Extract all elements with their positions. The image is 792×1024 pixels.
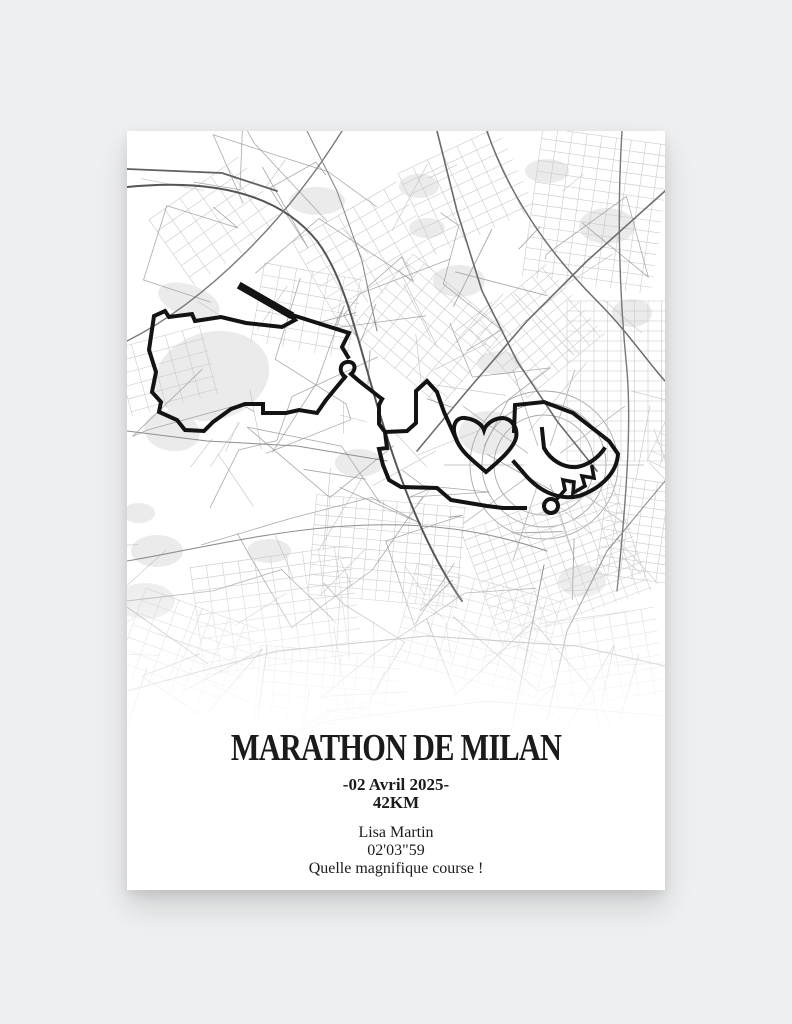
route-finish-circle xyxy=(544,499,558,513)
page-background: { "page": { "background_color": "#eff0f1… xyxy=(0,0,792,1024)
marathon-route-path xyxy=(379,381,457,441)
finish-time: 02'03"59 xyxy=(127,843,665,859)
runner-name: Lisa Martin xyxy=(127,825,665,841)
personal-caption: Quelle magnifique course ! xyxy=(127,861,665,877)
marathon-route-path xyxy=(341,362,382,399)
event-date: -02 Avril 2025- xyxy=(127,776,665,793)
marathon-map-poster: MARATHON DE MILAN -02 Avril 2025- 42KM L… xyxy=(127,131,665,890)
race-distance: 42KM xyxy=(127,794,665,811)
marathon-route-path xyxy=(542,429,604,467)
poster-text-block: MARATHON DE MILAN -02 Avril 2025- 42KM L… xyxy=(127,729,665,877)
poster-title: MARATHON DE MILAN xyxy=(181,729,611,767)
